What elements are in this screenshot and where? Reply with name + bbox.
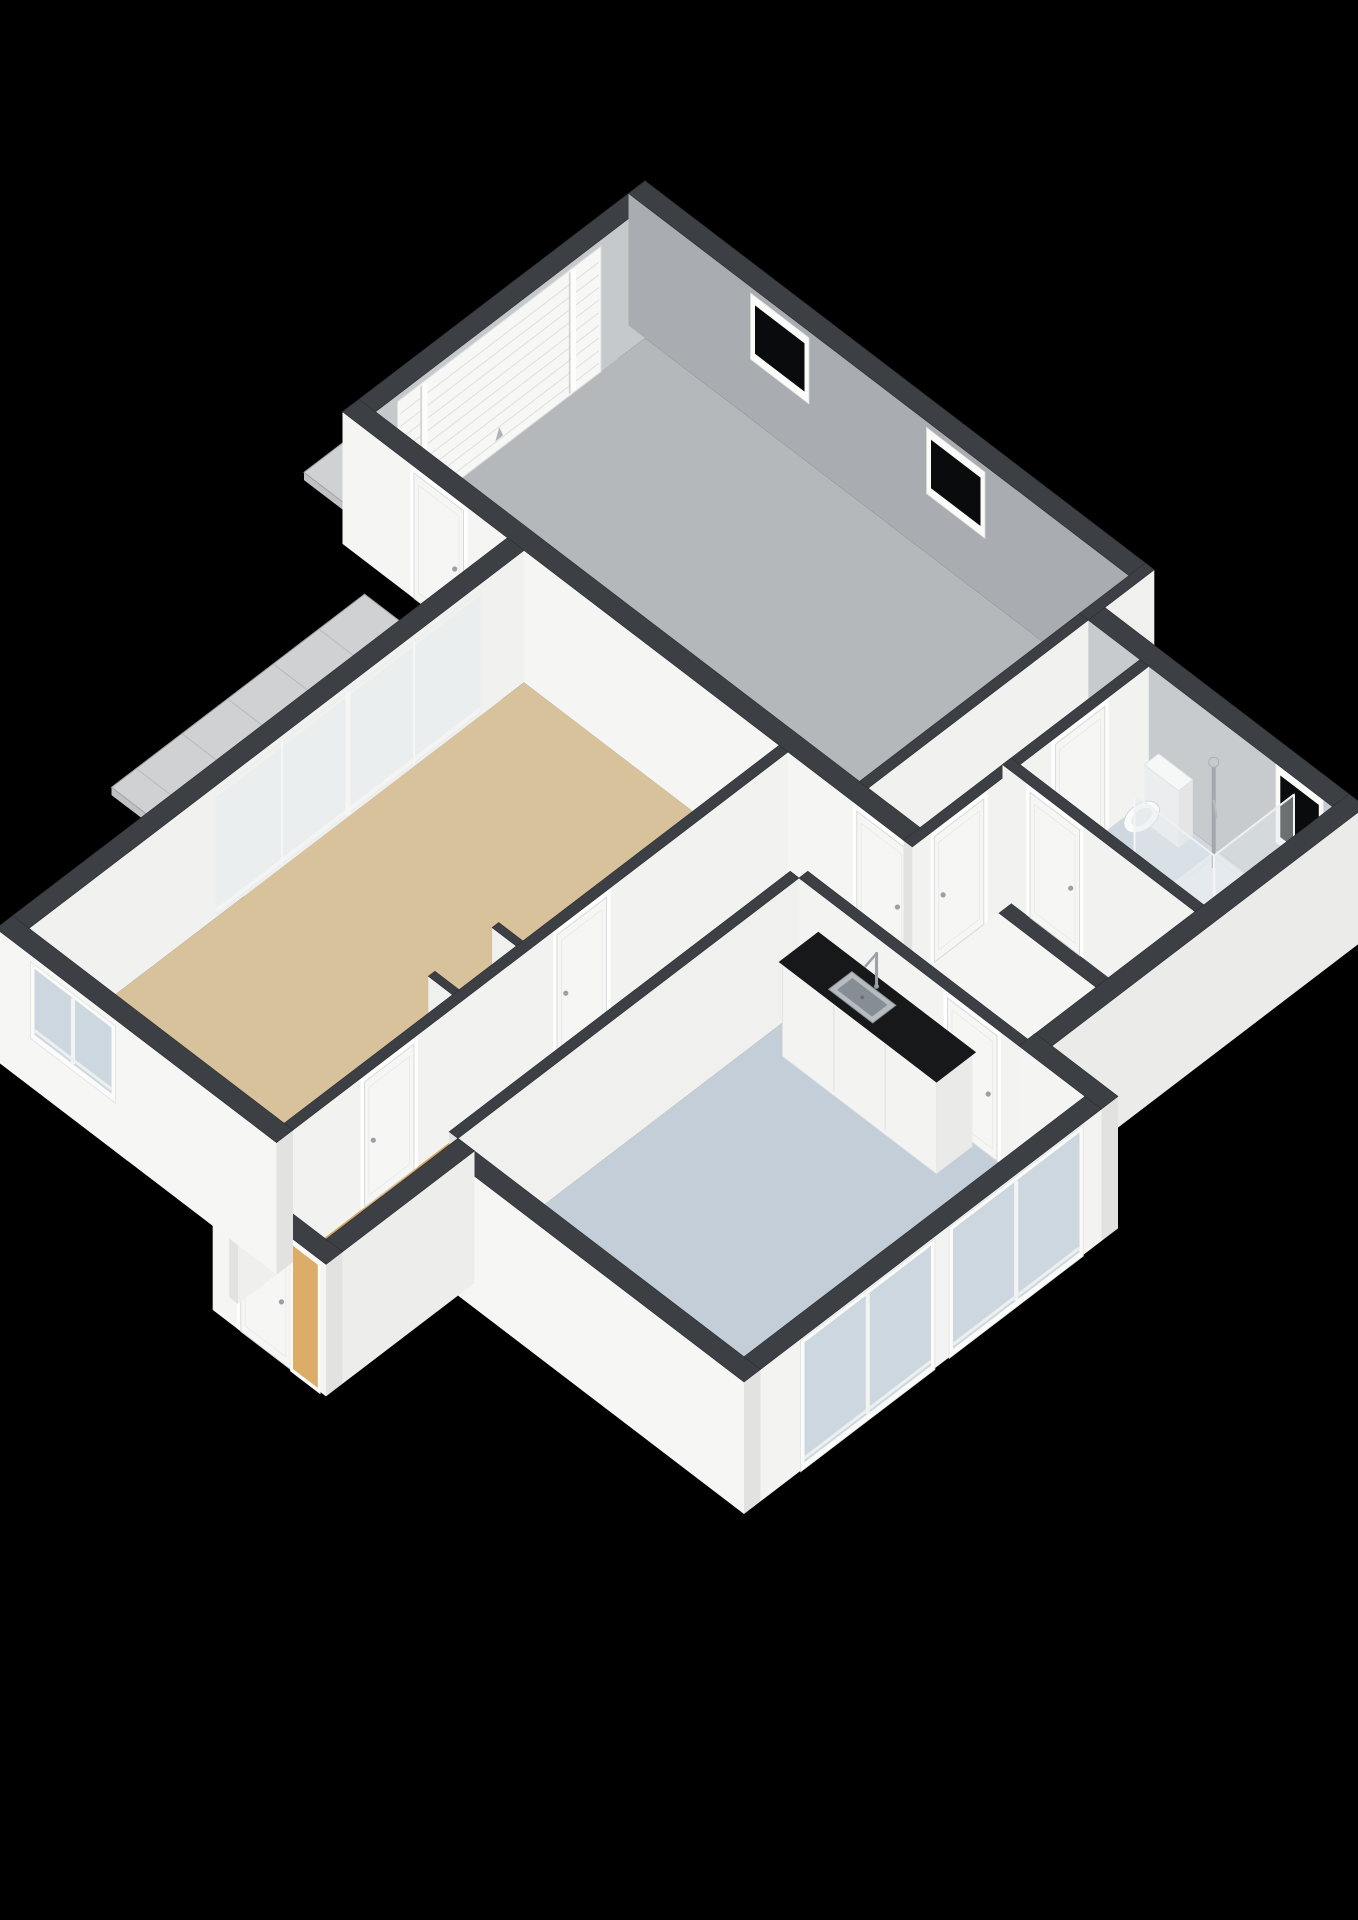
floorplan-viewport [0,0,1358,1920]
front-door-sidelight [290,1239,320,1394]
floorplan-3d-render [0,0,1358,1920]
